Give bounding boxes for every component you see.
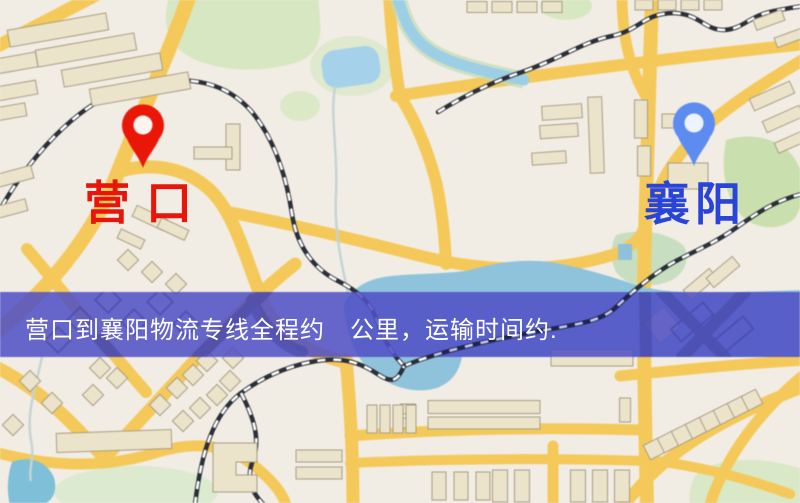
logistics-map: 营口 襄阳 营口到襄阳物流专线全程约 公里，运输时间约.: [0, 0, 800, 503]
map-canvas: [0, 0, 800, 503]
pin-hole: [134, 116, 153, 135]
origin-city-label: 营口: [84, 180, 208, 226]
pin-hole: [685, 114, 704, 133]
route-banner-text: 营口到襄阳物流专线全程约 公里，运输时间约.: [25, 310, 558, 345]
route-banner: 营口到襄阳物流专线全程约 公里，运输时间约.: [0, 292, 800, 357]
destination-city-label: 襄阳: [644, 181, 746, 227]
